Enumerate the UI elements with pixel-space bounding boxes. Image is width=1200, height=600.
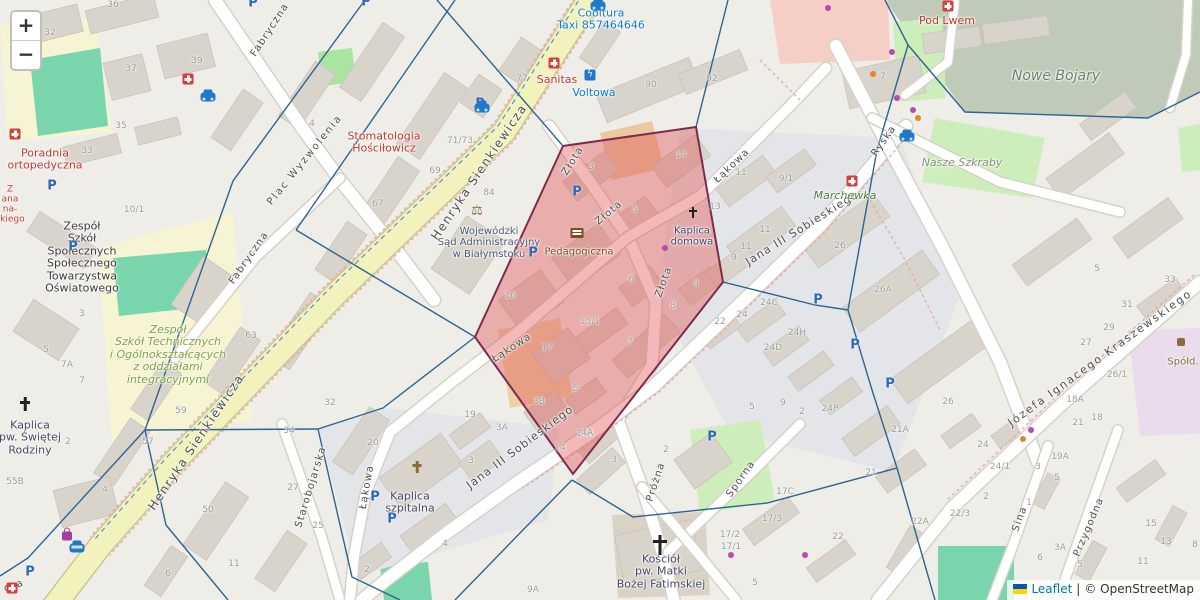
voronoi-edge [848, 310, 897, 468]
voronoi-edge [318, 429, 400, 600]
attribution-bar: Leaflet|© OpenStreetMap [1007, 580, 1200, 600]
openstreetmap-link[interactable]: © OpenStreetMap [1084, 582, 1194, 596]
voronoi-edge [455, 480, 572, 600]
voronoi-edge [145, 429, 318, 430]
voronoi-edge [296, 230, 475, 337]
voronoi-edge [145, 0, 365, 430]
voronoi-edge [296, 0, 455, 230]
voronoi-edge [0, 430, 145, 576]
voronoi-edge [696, 0, 728, 127]
overlay-layer [0, 0, 1200, 600]
leaflet-link[interactable]: Leaflet [1031, 582, 1072, 596]
voronoi-edge [318, 337, 475, 429]
zoom-in-button[interactable]: + [12, 12, 40, 41]
voronoi-edge [897, 468, 935, 600]
voronoi-edge [145, 430, 228, 600]
voronoi-edge [885, 0, 1200, 118]
attribution-separator: | [1076, 582, 1080, 596]
highlighted-region-polygon[interactable] [475, 127, 723, 474]
map-canvas[interactable]: FabrycznaPlac WyzwoleniaFabrycznaHenryka… [0, 0, 1200, 600]
voronoi-edge [723, 282, 848, 310]
voronoi-edge [848, 45, 908, 310]
zoom-control: + − [10, 10, 42, 71]
ukraine-flag-icon [1013, 584, 1027, 594]
voronoi-edge [572, 468, 897, 517]
zoom-out-button[interactable]: − [12, 41, 40, 69]
voronoi-edge [437, 0, 563, 146]
